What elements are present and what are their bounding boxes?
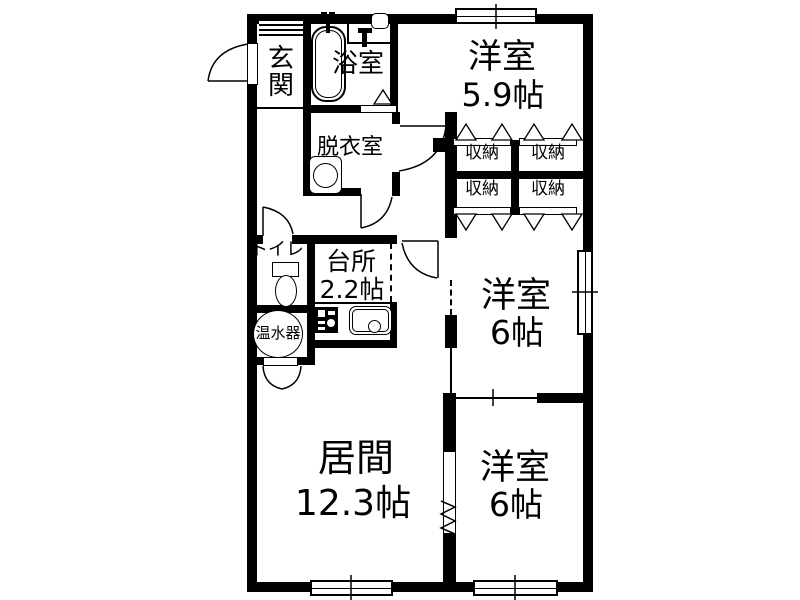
room-size-bedroom1: 5.9帖 xyxy=(462,79,545,113)
wall-heater-bottom-left xyxy=(247,357,263,365)
stove-grill xyxy=(318,321,325,324)
room-label-dressing: 脱衣室 xyxy=(317,136,383,159)
wall-bedroom2-3-divider xyxy=(537,393,583,403)
wall-hall-right xyxy=(445,112,457,238)
window-bedroom2-right xyxy=(577,250,593,335)
room-label-storage-4: 収納 xyxy=(531,181,565,199)
window-sash-line xyxy=(585,252,586,333)
wall-bedroom3-left-lower xyxy=(443,533,456,582)
closet-door-track-bottom-left xyxy=(453,207,511,215)
stove-grill xyxy=(318,327,325,330)
wash-basin-icon xyxy=(371,13,389,29)
wall-bath-right xyxy=(390,24,398,112)
wall-hall-right-lower xyxy=(445,315,457,348)
entrance-door-arc xyxy=(208,44,248,81)
wall-closet-divider-h xyxy=(457,171,583,179)
genkan-step-edge xyxy=(256,107,303,109)
wall-dressing-bottom-right xyxy=(393,188,400,196)
shower-faucet-stem-icon xyxy=(362,33,367,47)
room-size-bedroom3: 6帖 xyxy=(489,488,543,523)
faucet-stem-icon xyxy=(326,17,330,33)
dressing-door-arc xyxy=(361,197,392,228)
room-size-bedroom2: 6帖 xyxy=(490,316,544,351)
window-sash-line xyxy=(475,588,556,589)
hall-bedroom2-dotted-line xyxy=(450,280,452,315)
closet-folding-door-icon xyxy=(492,214,512,230)
window-bedroom1-top xyxy=(455,8,537,24)
wall-heater-bottom-right xyxy=(297,357,310,365)
window-sash-line xyxy=(457,16,535,17)
entrance-doorway-frame xyxy=(247,43,258,85)
window-bedroom3-bottom xyxy=(473,580,558,596)
room-label-storage-2: 収納 xyxy=(531,145,565,163)
accordion-door-track xyxy=(443,452,456,533)
heater-doorway-frame xyxy=(263,357,298,366)
room-label-bedroom2: 洋室 xyxy=(481,278,551,315)
wall-dressing-right-upper xyxy=(392,112,400,124)
genkan-step-hatch xyxy=(259,19,303,38)
window-living-bottom xyxy=(310,580,393,596)
room-label-storage-1: 収納 xyxy=(465,145,499,163)
wall-left-top xyxy=(247,14,257,43)
room-label-bathroom: 浴室 xyxy=(332,51,384,78)
room-label-kitchen: 台所 xyxy=(326,249,376,275)
room-label-bedroom3: 洋室 xyxy=(480,450,550,487)
wall-right-top xyxy=(583,14,593,250)
washing-machine-drum xyxy=(313,163,338,188)
heater-door-arc-left xyxy=(263,366,282,389)
closet-folding-door-icon xyxy=(456,214,476,230)
room-label-bedroom1: 洋室 xyxy=(468,40,536,76)
wall-right-bottom xyxy=(583,335,593,592)
toilet-door-arc xyxy=(263,207,293,234)
floor-plan: 玄関 浴室 脱衣室 洋室 5.9帖 収納 収納 収納 収納 トイレ 台所 2.2… xyxy=(0,0,800,600)
window-sash-line xyxy=(312,588,391,589)
wall-closet-divider-v xyxy=(511,140,519,215)
stove-burner xyxy=(318,310,325,317)
room-label-living: 居間 xyxy=(318,439,394,479)
wall-counter-bottom xyxy=(307,340,397,348)
bath-ledge-horizontal xyxy=(347,42,397,44)
room-label-toilet: トイレ xyxy=(250,241,304,260)
sink-drain xyxy=(368,320,381,333)
room-label-genkan: 玄関 xyxy=(266,46,296,100)
bath-ledge-vertical xyxy=(347,24,349,44)
closet-folding-door-icon xyxy=(562,214,582,230)
sliding-partition-line xyxy=(455,397,537,399)
toilet-bowl-icon xyxy=(275,275,297,307)
room-label-storage-3: 収納 xyxy=(465,181,499,199)
stove-icon xyxy=(315,307,338,333)
closet-door-track-bottom-right xyxy=(519,207,577,215)
wall-thin-living-bedroom2 xyxy=(450,348,452,395)
stove-vent xyxy=(328,311,335,315)
wall-bath-bottom xyxy=(303,105,360,113)
heater-door-arc-right xyxy=(282,366,301,389)
wall-stub-bedroom1 xyxy=(433,138,447,152)
stove-burner xyxy=(327,319,335,327)
closet-folding-door-icon xyxy=(524,214,544,230)
sink-icon xyxy=(349,306,392,335)
wall-bottom-2 xyxy=(393,582,473,592)
kitchen-hall-dotted-line xyxy=(390,243,392,302)
washing-machine-icon xyxy=(309,156,342,194)
room-label-water-heater: 温水器 xyxy=(255,326,300,342)
room-size-kitchen: 2.2帖 xyxy=(320,277,385,303)
wall-bedroom3-left-upper xyxy=(443,393,456,452)
bedroom2-door-arc xyxy=(402,243,437,278)
room-size-living: 12.3帖 xyxy=(295,485,411,523)
